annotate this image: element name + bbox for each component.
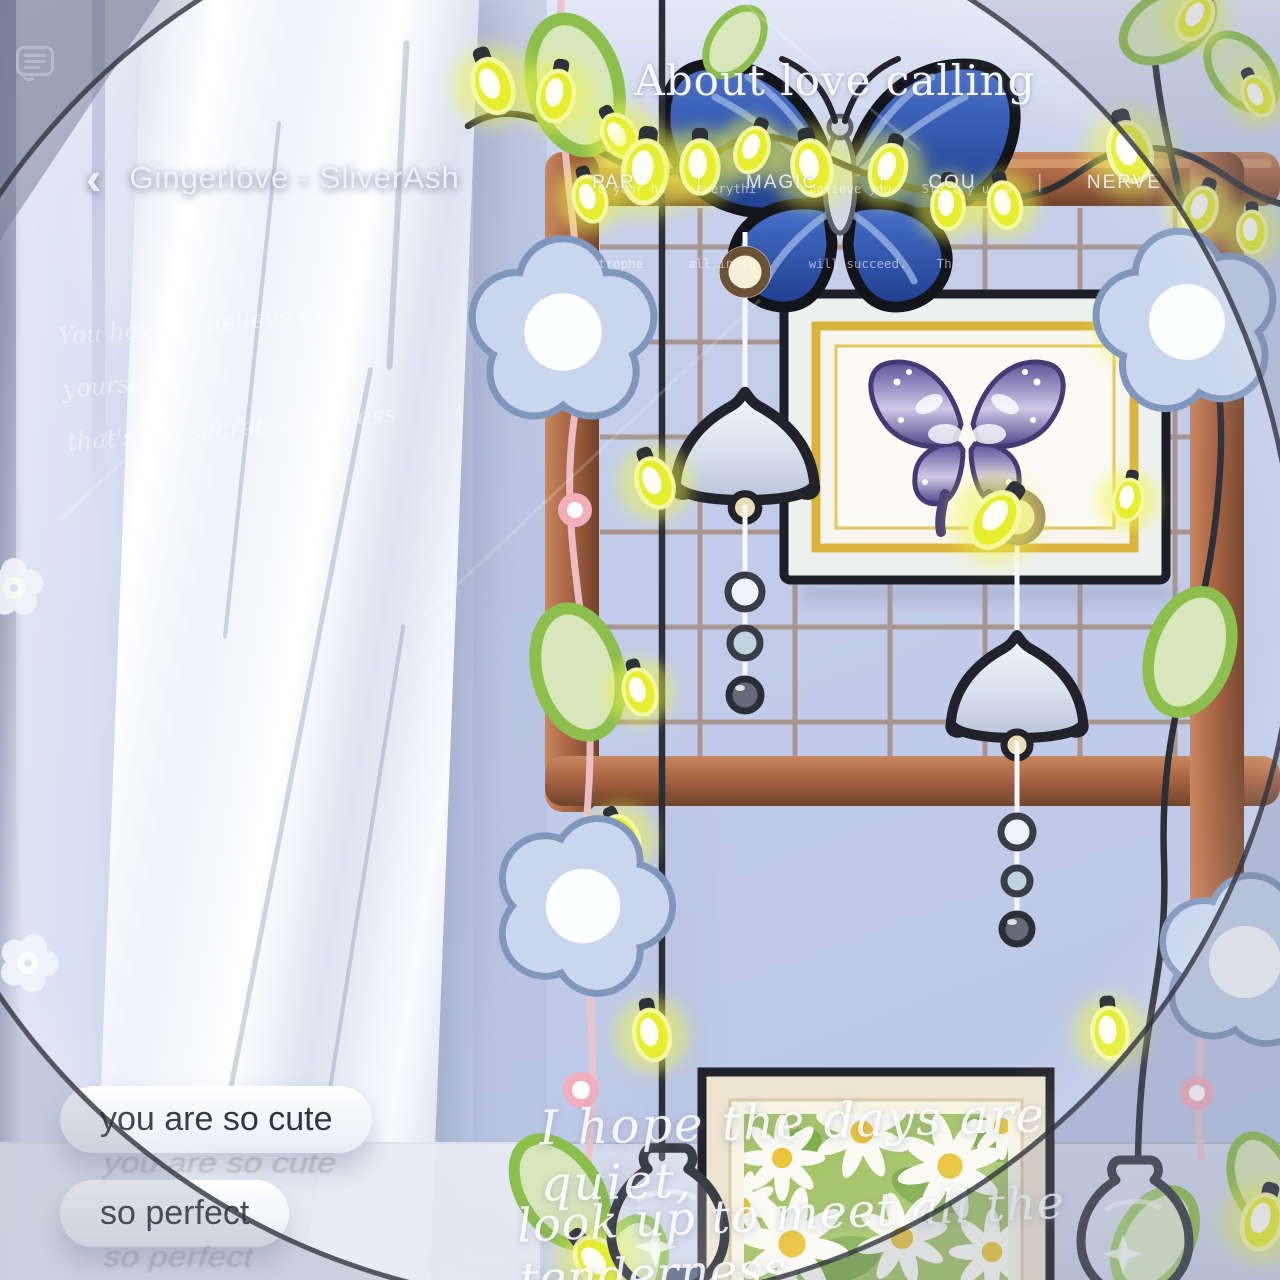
tab-par: PAR bbox=[592, 172, 636, 194]
tab-separator: | bbox=[696, 172, 703, 194]
message-text: you are so cute bbox=[100, 1100, 332, 1138]
message-bubble: so perfect so perfect bbox=[60, 1180, 289, 1247]
tab-cou: COU bbox=[928, 172, 976, 194]
back-button[interactable]: ‹ bbox=[86, 156, 101, 200]
message-bubble: you are so cute you are so cute bbox=[60, 1086, 372, 1153]
wall-quote: You have to believe in yourself that's t… bbox=[56, 281, 409, 468]
chat-header: ‹ Gingerlove - SliverAsh bbox=[86, 156, 460, 200]
white-wall-flowers bbox=[0, 558, 66, 998]
poster-tabs: PAR | MAGIC | COU | NERVE bbox=[592, 172, 1162, 194]
message-text-reflection: so perfect bbox=[99, 1241, 258, 1274]
chat-icon-line bbox=[24, 54, 46, 57]
chat-icon-line bbox=[24, 66, 40, 69]
message-text: so perfect bbox=[100, 1194, 249, 1232]
message-text-reflection: you are so cute bbox=[99, 1147, 341, 1180]
bead-string bbox=[728, 575, 762, 711]
chat-title: Gingerlove - SliverAsh bbox=[129, 160, 459, 196]
tab-nerve: NERVE bbox=[1087, 172, 1162, 194]
poster-subtitle: e year ha everythi believe you Sta t y u… bbox=[598, 126, 1098, 326]
scene: You have to believe in yourself that's t… bbox=[0, 0, 1280, 1280]
tab-separator: | bbox=[879, 172, 886, 194]
tab-separator: | bbox=[1037, 172, 1044, 194]
chat-bubble-icon[interactable] bbox=[16, 46, 54, 76]
bead-string bbox=[1001, 816, 1033, 944]
chat-icon-line bbox=[24, 60, 46, 63]
tab-magic: MAGIC bbox=[746, 172, 818, 194]
poster-subtitle-line2: trophe all in th will succeed. Th bbox=[598, 251, 1098, 276]
poster-title: About love calling bbox=[595, 56, 1075, 105]
